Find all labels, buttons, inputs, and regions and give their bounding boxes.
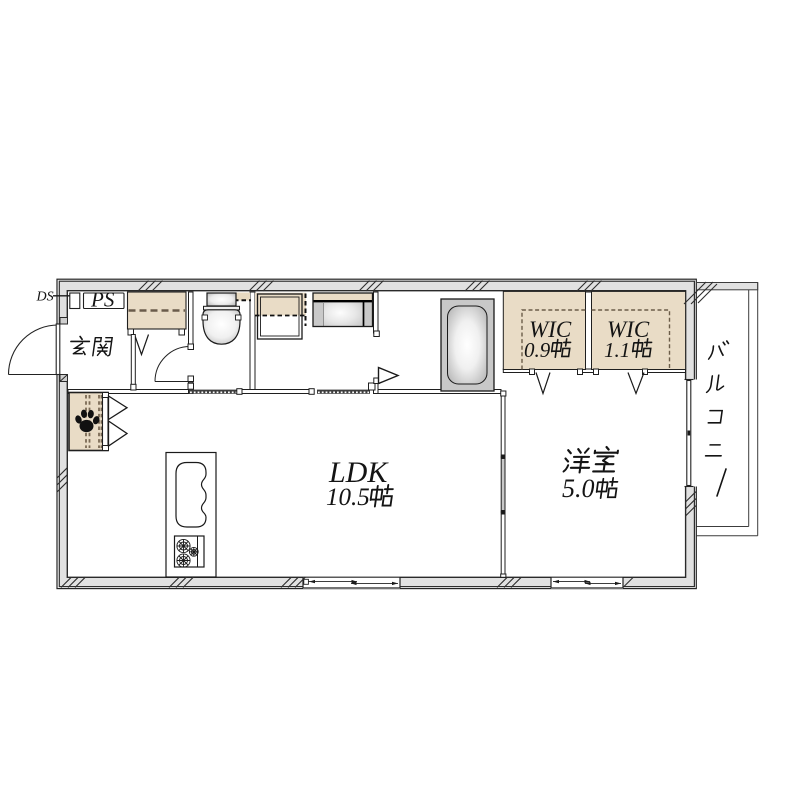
svg-text:10.5: 10.5 — [326, 484, 370, 511]
svg-text:5.0: 5.0 — [562, 474, 595, 503]
svg-text:PS: PS — [90, 288, 115, 312]
svg-text:1.1: 1.1 — [604, 338, 630, 362]
svg-text:DS: DS — [36, 290, 54, 305]
svg-text:0.9: 0.9 — [524, 338, 551, 362]
